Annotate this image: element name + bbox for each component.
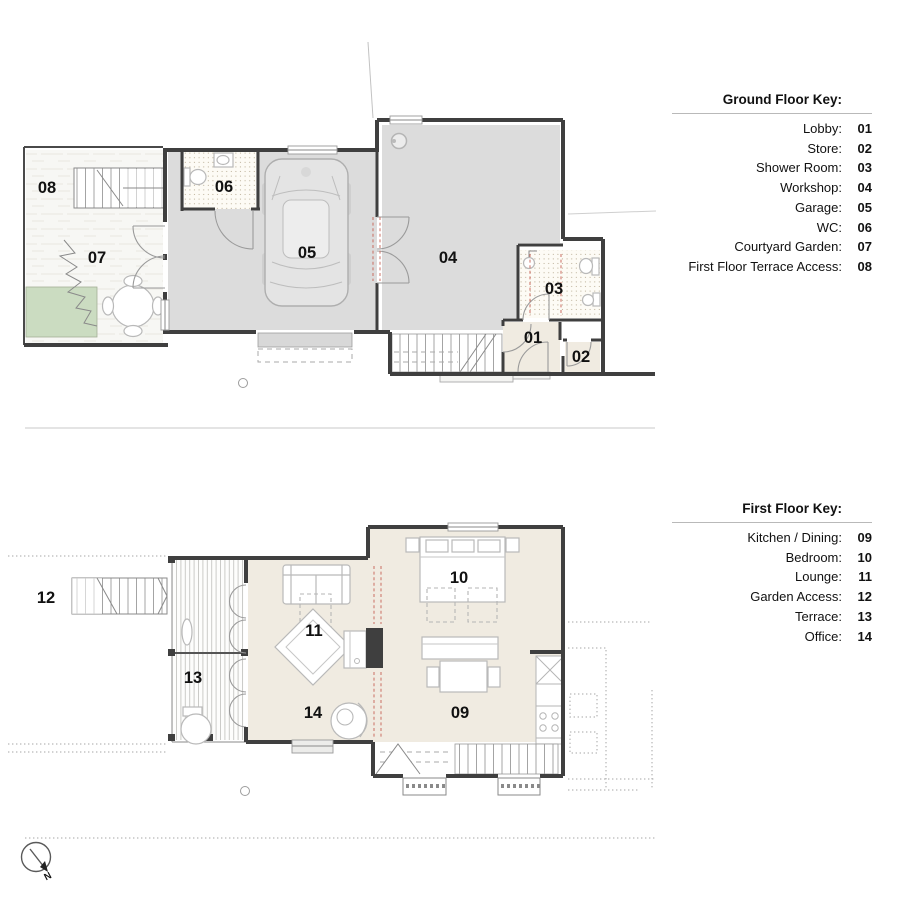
room-label-shower-room: 03 [545, 280, 563, 298]
first-floor-key: First Floor Key: Kitchen / Dining:09 Bed… [672, 501, 872, 646]
garden-access-stair [72, 578, 167, 614]
garage-apron-dashed [258, 349, 352, 362]
key-row-bedroom: Bedroom:10 [672, 548, 872, 568]
terrace-planter [182, 619, 192, 645]
room-label-lobby: 01 [524, 329, 542, 347]
first-floor-stair [376, 744, 558, 774]
key-label: Garage: [672, 198, 842, 218]
key-label: Kitchen / Dining: [672, 528, 842, 548]
entrance-stair [392, 334, 502, 372]
office-chair [331, 703, 367, 739]
car [262, 159, 351, 306]
garage-door-slab [258, 333, 352, 347]
key-row-garden-access: Garden Access:12 [672, 587, 872, 607]
key-label: Terrace: [672, 607, 842, 627]
key-label: WC: [672, 218, 842, 238]
key-number: 08 [850, 257, 872, 277]
key-row-lobby: Lobby:01 [672, 119, 872, 139]
key-row-office: Office:14 [672, 627, 872, 647]
key-number: 01 [850, 119, 872, 139]
room-label-lounge: 11 [305, 622, 322, 640]
room-label-garden-access: 12 [37, 589, 55, 607]
boundary-line [368, 42, 373, 118]
north-arrow-needle [30, 849, 44, 867]
kitchen-counter [536, 656, 564, 744]
room-label-terrace: 13 [184, 669, 202, 687]
key-label: Courtyard Garden: [672, 237, 842, 257]
key-number: 12 [850, 587, 872, 607]
key-row-terrace-access: First Floor Terrace Access:08 [672, 257, 872, 277]
key-row-wc: WC:06 [672, 218, 872, 238]
room-label-bedroom: 10 [450, 569, 468, 587]
key-row-workshop: Workshop:04 [672, 178, 872, 198]
north-arrow-label: N [42, 870, 53, 883]
key-label: Office: [672, 627, 842, 647]
garden-planting-bed [26, 287, 97, 337]
wall-pier [366, 628, 383, 668]
room-label-store: 02 [572, 348, 590, 366]
manhole-circle [241, 787, 250, 796]
key-row-kitchen-dining: Kitchen / Dining:09 [672, 528, 872, 548]
key-divider [672, 113, 872, 114]
dotted-boundary-left [8, 744, 168, 752]
key-number: 02 [850, 139, 872, 159]
key-row-store: Store:02 [672, 139, 872, 159]
key-row-terrace: Terrace:13 [672, 607, 872, 627]
room-label-courtyard-garden: 07 [88, 249, 106, 267]
key-number: 04 [850, 178, 872, 198]
key-row-courtyard-garden: Courtyard Garden:07 [672, 237, 872, 257]
key-label: Lounge: [672, 567, 842, 587]
room-label-kitchen-dining: 09 [451, 704, 469, 722]
key-label: Shower Room: [672, 158, 842, 178]
key-label: Workshop: [672, 178, 842, 198]
key-label: Garden Access: [672, 587, 842, 607]
key-number: 11 [850, 567, 872, 587]
key-number: 03 [850, 158, 872, 178]
key-number: 13 [850, 607, 872, 627]
key-number: 07 [850, 237, 872, 257]
ground-floor-plan: 01 02 03 04 05 06 07 08 [24, 42, 656, 388]
first-floor-key-title: First Floor Key: [672, 501, 872, 516]
key-number: 05 [850, 198, 872, 218]
room-label-workshop: 04 [439, 249, 458, 267]
first-floor-plan: 09 10 11 12 13 14 [8, 523, 655, 838]
room-label-office: 14 [304, 704, 323, 722]
room-label-wc: 06 [215, 178, 233, 196]
room-label-terrace-access: 08 [38, 179, 56, 197]
key-row-shower-room: Shower Room:03 [672, 158, 872, 178]
key-label: Store: [672, 139, 842, 159]
key-row-lounge: Lounge:11 [672, 567, 872, 587]
neighbour-dotted-outline [568, 622, 655, 790]
key-label: Lobby: [672, 119, 842, 139]
ground-floor-key: Ground Floor Key: Lobby:01 Store:02 Show… [672, 92, 872, 277]
key-number: 06 [850, 218, 872, 238]
key-label: First Floor Terrace Access: [672, 257, 842, 277]
north-arrow: N [22, 843, 54, 884]
terrace-table [181, 714, 211, 744]
key-row-garage: Garage:05 [672, 198, 872, 218]
room-label-garage: 05 [298, 244, 316, 262]
sideboard [344, 631, 366, 668]
key-number: 09 [850, 528, 872, 548]
terrace-access-stair [74, 168, 165, 208]
manhole-circle [239, 379, 248, 388]
key-number: 14 [850, 627, 872, 647]
key-number: 10 [850, 548, 872, 568]
key-divider [672, 522, 872, 523]
key-label: Bedroom: [672, 548, 842, 568]
ground-floor-key-title: Ground Floor Key: [672, 92, 872, 107]
boundary-line [568, 211, 656, 214]
rooflight-dot [392, 139, 396, 143]
